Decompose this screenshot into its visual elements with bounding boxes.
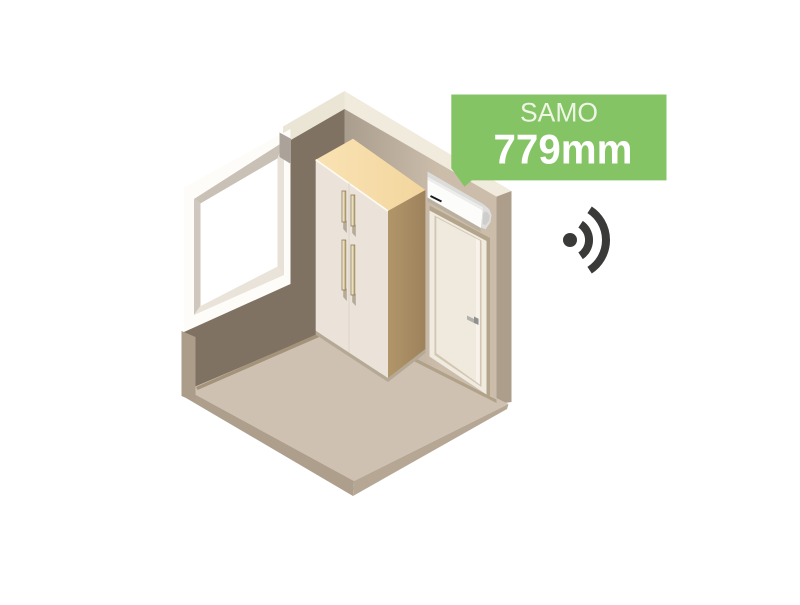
svg-text:SAMO: SAMO: [520, 98, 598, 128]
svg-text:779mm: 779mm: [494, 125, 633, 172]
